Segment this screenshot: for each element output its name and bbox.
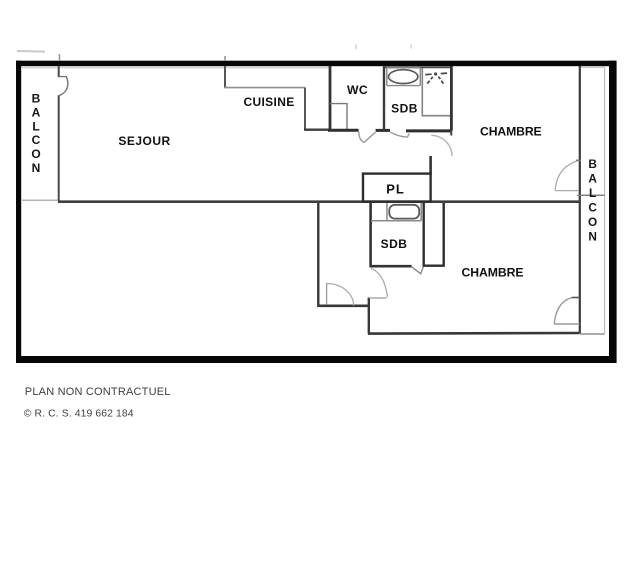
svg-text:CHAMBRE: CHAMBRE bbox=[462, 266, 524, 280]
svg-text:PL: PL bbox=[386, 182, 405, 197]
svg-text:B: B bbox=[32, 92, 41, 106]
svg-text:A: A bbox=[32, 105, 41, 119]
svg-text:SDB: SDB bbox=[391, 101, 418, 115]
svg-text:N: N bbox=[32, 161, 41, 175]
svg-text:SEJOUR: SEJOUR bbox=[118, 134, 170, 148]
svg-text:L: L bbox=[589, 186, 596, 200]
svg-text:O: O bbox=[588, 215, 597, 229]
svg-text:C: C bbox=[588, 201, 597, 215]
svg-text:B: B bbox=[588, 157, 597, 171]
svg-text:O: O bbox=[31, 147, 40, 161]
svg-text:N: N bbox=[588, 230, 597, 244]
svg-text:C: C bbox=[32, 133, 41, 147]
svg-text:© R. C. S. 419 662 184: © R. C. S. 419 662 184 bbox=[24, 408, 134, 419]
svg-text:PLAN NON CONTRACTUEL: PLAN NON CONTRACTUEL bbox=[25, 386, 171, 398]
svg-text:SDB: SDB bbox=[381, 237, 408, 251]
svg-text:WC: WC bbox=[347, 83, 368, 97]
svg-text:A: A bbox=[588, 172, 597, 186]
svg-text:CUISINE: CUISINE bbox=[243, 95, 294, 109]
svg-text:L: L bbox=[32, 119, 39, 133]
svg-text:CHAMBRE: CHAMBRE bbox=[480, 124, 542, 138]
